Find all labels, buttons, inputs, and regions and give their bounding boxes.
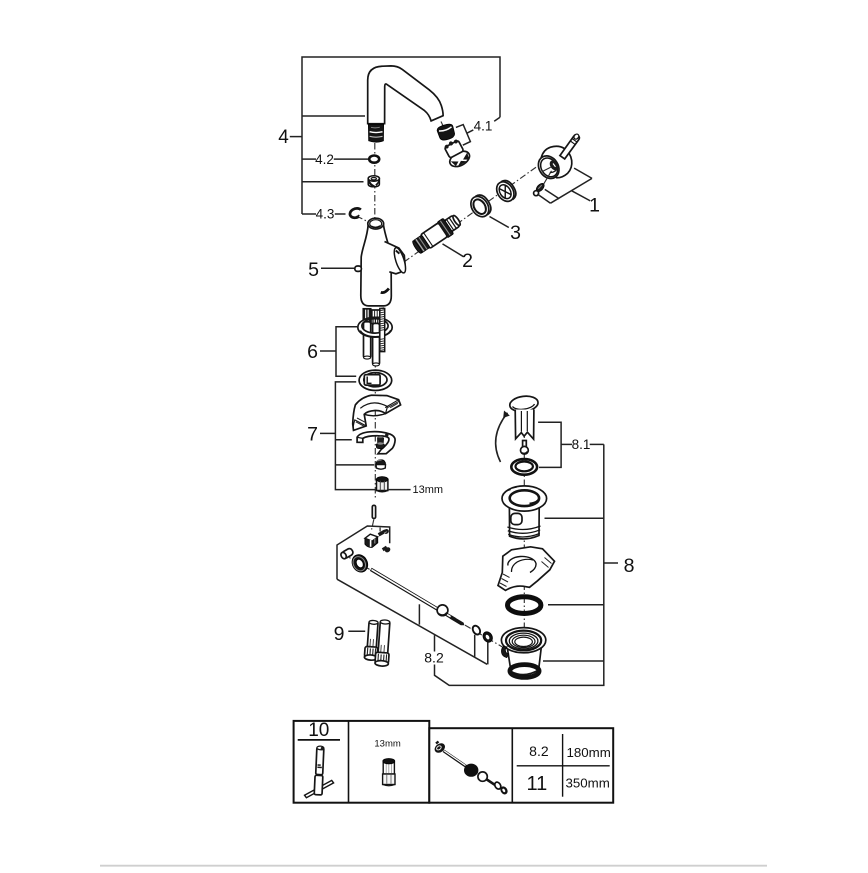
svg-text:4.2: 4.2 — [315, 152, 334, 167]
svg-text:350mm: 350mm — [566, 776, 610, 791]
svg-text:4: 4 — [278, 127, 289, 148]
svg-text:180mm: 180mm — [567, 745, 611, 760]
svg-text:1: 1 — [589, 194, 600, 216]
svg-text:8: 8 — [624, 555, 635, 577]
svg-text:8.2: 8.2 — [424, 650, 444, 666]
svg-text:8.1: 8.1 — [572, 437, 591, 452]
svg-text:3: 3 — [510, 222, 521, 244]
svg-text:13mm: 13mm — [413, 484, 444, 496]
svg-text:7: 7 — [307, 424, 318, 446]
svg-text:5: 5 — [308, 259, 319, 281]
svg-text:13mm: 13mm — [374, 738, 400, 749]
svg-text:9: 9 — [334, 623, 345, 645]
svg-text:4.3: 4.3 — [316, 207, 335, 222]
svg-text:4.1: 4.1 — [474, 118, 493, 133]
svg-text:10: 10 — [308, 720, 329, 741]
svg-text:8.2: 8.2 — [529, 743, 549, 759]
svg-text:6: 6 — [307, 341, 318, 363]
svg-text:2: 2 — [462, 250, 473, 272]
svg-text:11: 11 — [527, 773, 548, 795]
